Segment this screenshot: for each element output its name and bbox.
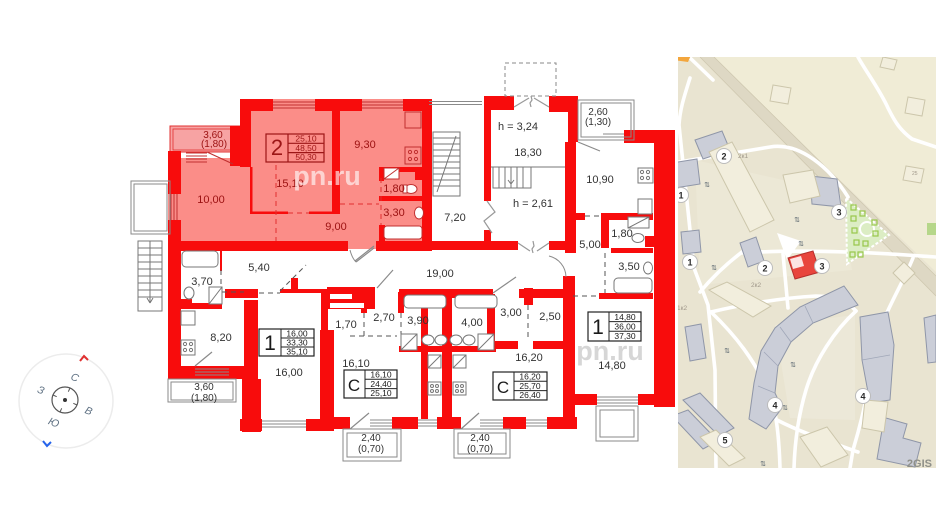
svg-text:3,50: 3,50 (618, 261, 639, 273)
svg-text:19,00: 19,00 (426, 268, 454, 280)
svg-text:1: 1 (687, 258, 692, 268)
svg-text:pn.ru: pn.ru (293, 161, 361, 191)
svg-text:⇅: ⇅ (782, 405, 788, 412)
svg-text:2: 2 (762, 264, 767, 274)
svg-text:26,40: 26,40 (519, 390, 541, 400)
svg-text:5: 5 (722, 436, 727, 446)
svg-text:h = 2,61: h = 2,61 (513, 198, 553, 210)
svg-text:5,40: 5,40 (248, 262, 269, 274)
svg-text:4: 4 (860, 392, 865, 402)
svg-text:С: С (497, 378, 509, 397)
svg-text:3: 3 (836, 208, 841, 218)
svg-text:3: 3 (819, 262, 824, 272)
svg-text:1: 1 (264, 332, 276, 355)
svg-text:3,30: 3,30 (383, 207, 404, 219)
svg-text:⇅: ⇅ (724, 348, 730, 355)
svg-text:14,80: 14,80 (614, 312, 636, 322)
svg-text:5,00: 5,00 (579, 239, 600, 251)
svg-text:10,90: 10,90 (586, 174, 614, 186)
svg-text:3,00: 3,00 (500, 307, 521, 319)
svg-text:(1,80): (1,80) (191, 393, 217, 404)
svg-text:25,10: 25,10 (370, 388, 392, 398)
svg-text:⇅: ⇅ (711, 265, 717, 272)
svg-text:1,80: 1,80 (383, 183, 404, 195)
svg-text:(1,80): (1,80) (201, 139, 227, 150)
svg-text:3,70: 3,70 (191, 276, 212, 288)
svg-text:4,00: 4,00 (461, 317, 482, 329)
svg-text:10,00: 10,00 (197, 194, 225, 206)
svg-text:35,10: 35,10 (286, 347, 308, 357)
svg-text:16,00: 16,00 (275, 367, 303, 379)
svg-text:⇅: ⇅ (790, 362, 796, 369)
svg-text:3,90: 3,90 (407, 315, 428, 327)
svg-text:1: 1 (678, 191, 683, 201)
svg-text:2,40: 2,40 (361, 433, 381, 444)
svg-text:(0,70): (0,70) (358, 444, 384, 455)
svg-text:9,30: 9,30 (354, 139, 375, 151)
svg-text:16,20: 16,20 (515, 352, 543, 364)
svg-text:18,30: 18,30 (514, 147, 542, 159)
svg-text:2: 2 (721, 152, 726, 162)
svg-text:⇅: ⇅ (760, 461, 766, 468)
svg-text:1,70: 1,70 (335, 319, 356, 331)
svg-text:25: 25 (912, 171, 918, 177)
svg-text:С: С (348, 376, 360, 395)
svg-text:4: 4 (772, 401, 777, 411)
svg-text:2,70: 2,70 (373, 312, 394, 324)
svg-text:3,60: 3,60 (194, 382, 214, 393)
svg-text:16,10: 16,10 (342, 358, 370, 370)
svg-text:2к1: 2к1 (738, 153, 748, 160)
svg-text:8,20: 8,20 (210, 332, 231, 344)
svg-text:(1,30): (1,30) (585, 117, 611, 128)
svg-text:7,20: 7,20 (444, 212, 465, 224)
svg-text:2к2: 2к2 (751, 282, 761, 289)
svg-text:pn.ru: pn.ru (576, 336, 644, 366)
svg-text:h = 3,24: h = 3,24 (498, 121, 538, 133)
svg-text:9,00: 9,00 (325, 221, 346, 233)
svg-text:2,50: 2,50 (539, 311, 560, 323)
svg-text:⇅: ⇅ (794, 217, 800, 224)
svg-text:2: 2 (271, 135, 283, 160)
svg-text:1,80: 1,80 (611, 228, 632, 240)
svg-text:36,00: 36,00 (614, 321, 636, 331)
svg-text:(0,70): (0,70) (467, 444, 493, 455)
svg-text:2,40: 2,40 (470, 433, 490, 444)
svg-text:⇅: ⇅ (704, 182, 710, 189)
svg-text:⇅: ⇅ (798, 241, 804, 248)
svg-text:1к2: 1к2 (677, 305, 687, 312)
